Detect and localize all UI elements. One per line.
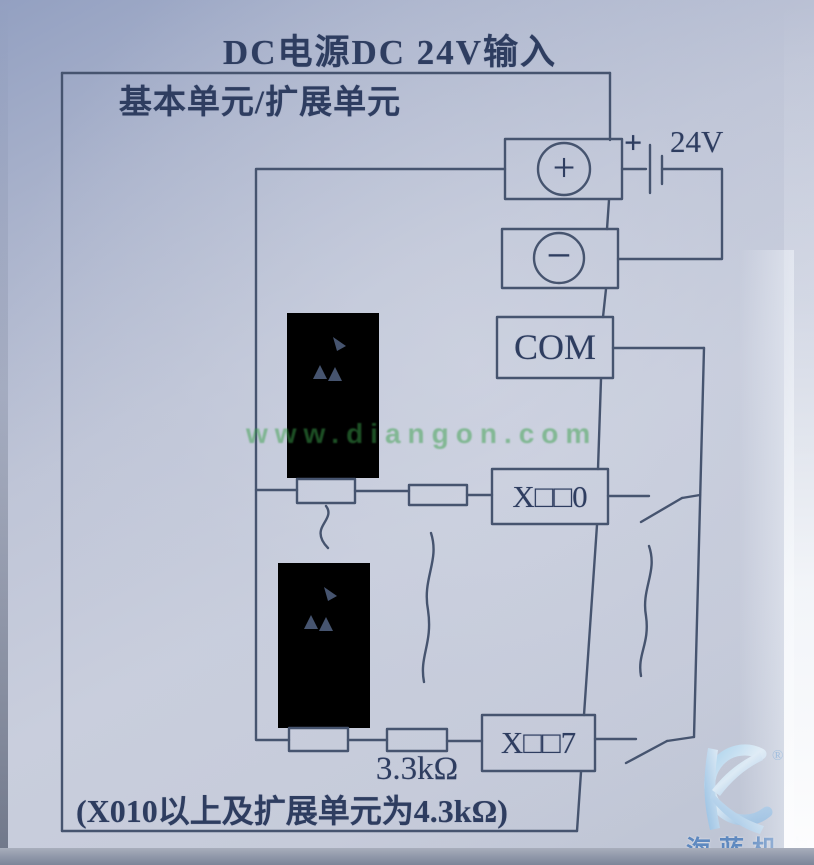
battery-plus-label: + (624, 124, 642, 161)
resistor-x7-series (387, 729, 447, 751)
photo-edge-right (784, 0, 814, 865)
diagram-title: DC电源DC 24V输入 (100, 24, 680, 75)
ellipsis-squiggles (321, 506, 652, 682)
resistor-x0-shunt (297, 479, 355, 503)
plus-terminal-symbol: + (534, 139, 594, 199)
com-bus (613, 348, 704, 737)
photo-background: DC电源DC 24V输入 基本单元/扩展单元 + − COM X□□0 X□□7… (0, 0, 814, 865)
optocoupler-x0 (287, 297, 379, 479)
switch-x0 (608, 495, 700, 522)
minus-terminal-symbol: − (529, 228, 589, 288)
battery-symbol (618, 145, 722, 259)
photo-edge-left (0, 0, 8, 865)
com-terminal-label: COM (497, 317, 613, 378)
unit-label: 基本单元/扩展单元 (80, 75, 440, 123)
x7-terminal-label: X□□7 (482, 715, 595, 771)
resistor-x7-shunt (289, 728, 348, 751)
optocoupler-x7 (278, 547, 370, 729)
x0-terminal-label: X□□0 (492, 469, 608, 524)
battery-voltage-label: 24V (670, 124, 723, 160)
site-watermark: www.diangon.com (246, 418, 597, 450)
photo-edge-bottom (0, 848, 814, 865)
resistor-value-label: 3.3kΩ (352, 751, 482, 788)
bottom-note: (X010以上及扩展单元为4.3kΩ) (76, 786, 508, 832)
resistor-x0-series (409, 485, 467, 505)
